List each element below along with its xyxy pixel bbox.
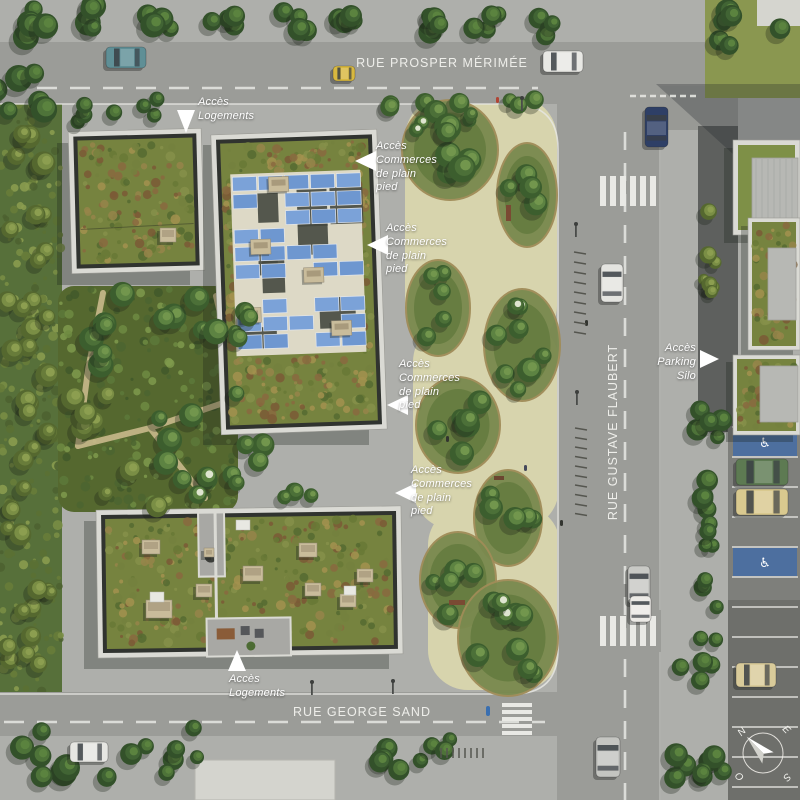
building-northwest [68, 128, 205, 273]
street-name-top: RUE PROSPER MÉRIMÉE [356, 55, 528, 70]
label-acces-commerces-4: Accès Commerces de plain pied [411, 464, 472, 519]
label-acces-commerces-2: Accès Commerces de plain pied [386, 222, 447, 277]
street-name-right: RUE GUSTAVE FLAUBERT [606, 344, 620, 520]
label-acces-parking-silo: Accès Parking Silo [640, 342, 696, 383]
south-building-roof [195, 760, 335, 800]
label-acces-logements-top: Accès Logements [198, 96, 254, 124]
site-plan: ♿ ♿ [0, 0, 800, 800]
wheelchair-icon: ♿ [759, 556, 771, 571]
parking-lot-south [728, 600, 800, 800]
label-acces-commerces-3: Accès Commerces de plain pied [399, 358, 460, 413]
street-name-bottom: RUE GEORGE SAND [293, 705, 431, 719]
label-acces-logements-bottom: Accès Logements [229, 673, 285, 701]
label-acces-commerces-1: Accès Commerces de plain pied [376, 140, 437, 195]
